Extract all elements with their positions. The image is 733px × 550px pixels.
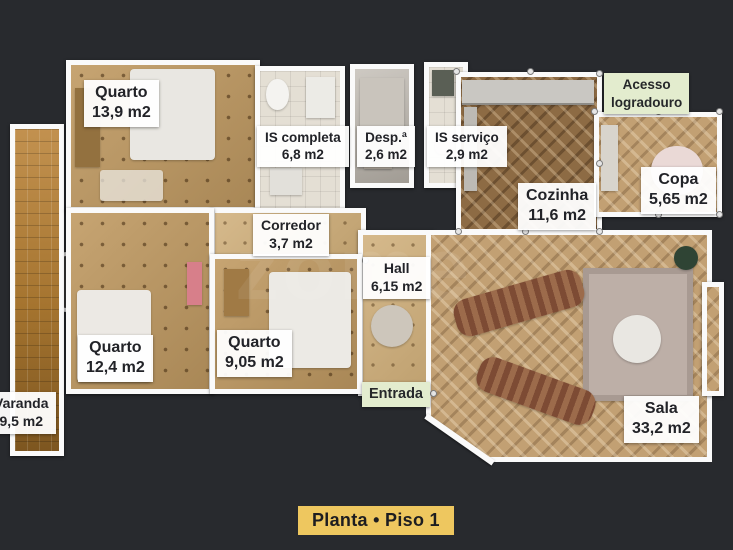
wall-node (716, 211, 723, 218)
wall-node (596, 70, 603, 77)
room-label-sala: Sala 33,2 m2 (624, 396, 699, 443)
acesso-line1: Acesso (611, 76, 682, 94)
room-area: 6,15 m2 (371, 278, 422, 296)
room-name: Quarto (92, 83, 151, 103)
room-area: 2,9 m2 (435, 146, 499, 163)
furniture-round-table (613, 315, 661, 363)
room-name: Copa (649, 170, 708, 190)
room-label-copa: Copa 5,65 m2 (641, 167, 716, 214)
room-label-varanda: Varanda 9,5 m2 (0, 392, 56, 434)
room-area: 33,2 m2 (632, 419, 691, 439)
furniture-pink-chair (187, 262, 202, 304)
floor-plan-canvas: zome Quarto 13,9 m2 IS completa 6,8 m2 D… (0, 0, 733, 550)
wall-node (591, 108, 598, 115)
furniture-shelves (360, 78, 403, 133)
furniture-dresser (100, 170, 163, 201)
wall-node (596, 160, 603, 167)
room-label-quarto-1: Quarto 13,9 m2 (84, 80, 159, 127)
furniture-cistern (432, 70, 454, 96)
furniture-nightstand (224, 269, 250, 316)
room-label-quarto-2: Quarto 12,4 m2 (78, 335, 153, 382)
furniture-copa-cabinet (601, 125, 618, 192)
furniture-shower (306, 77, 335, 118)
room-label-quarto-3: Quarto 9,05 m2 (217, 330, 292, 377)
room-name: Corredor (261, 217, 321, 235)
wall-node (596, 228, 603, 235)
room-name: Sala (632, 399, 691, 419)
furniture-hall-rug (371, 305, 413, 347)
room-area: 5,65 m2 (649, 190, 708, 210)
wall-node (453, 68, 460, 75)
room-area: 9,05 m2 (225, 353, 284, 373)
room-label-despensa: Desp.ª 2,6 m2 (357, 126, 415, 167)
entrada-text: Entrada (369, 385, 423, 404)
room-label-hall: Hall 6,15 m2 (363, 257, 430, 299)
entrada-label: Entrada (362, 382, 430, 407)
room-area: 2,6 m2 (365, 146, 407, 163)
furniture-sink (270, 168, 302, 196)
room-name: Hall (371, 260, 422, 278)
wall-node (527, 68, 534, 75)
wall-node (430, 390, 437, 397)
furniture-sofa-upper (450, 266, 587, 339)
furniture-kitchen-counter (462, 80, 594, 105)
plan-title: Planta • Piso 1 (298, 506, 454, 535)
room-area: 3,7 m2 (261, 235, 321, 253)
room-name: Quarto (225, 333, 284, 353)
wall-node (716, 108, 723, 115)
room-area: 9,5 m2 (0, 413, 48, 431)
room-label-corredor: Corredor 3,7 m2 (253, 214, 329, 256)
acesso-line2: logradouro (611, 94, 682, 112)
room-area: 12,4 m2 (86, 358, 145, 378)
room-name: IS serviço (435, 129, 499, 146)
wall-node (455, 228, 462, 235)
room-area: 6,8 m2 (265, 146, 341, 163)
room-name: Quarto (86, 338, 145, 358)
room-name: Varanda (0, 395, 48, 413)
room-name: Desp.ª (365, 129, 407, 146)
room-name: IS completa (265, 129, 341, 146)
room-label-is-completa: IS completa 6,8 m2 (257, 126, 349, 167)
acesso-logradouro-label: Acesso logradouro (604, 73, 689, 114)
furniture-plant (674, 246, 698, 270)
room-hall (358, 230, 434, 396)
room-label-is-servico: IS serviço 2,9 m2 (427, 126, 507, 167)
room-label-cozinha: Cozinha 11,6 m2 (518, 183, 596, 230)
sala-bay-window (702, 282, 724, 396)
furniture-toilet (266, 79, 288, 109)
room-area: 11,6 m2 (526, 206, 588, 226)
room-name: Cozinha (526, 186, 588, 206)
room-area: 13,9 m2 (92, 103, 151, 123)
furniture-sofa-lower (473, 353, 600, 429)
